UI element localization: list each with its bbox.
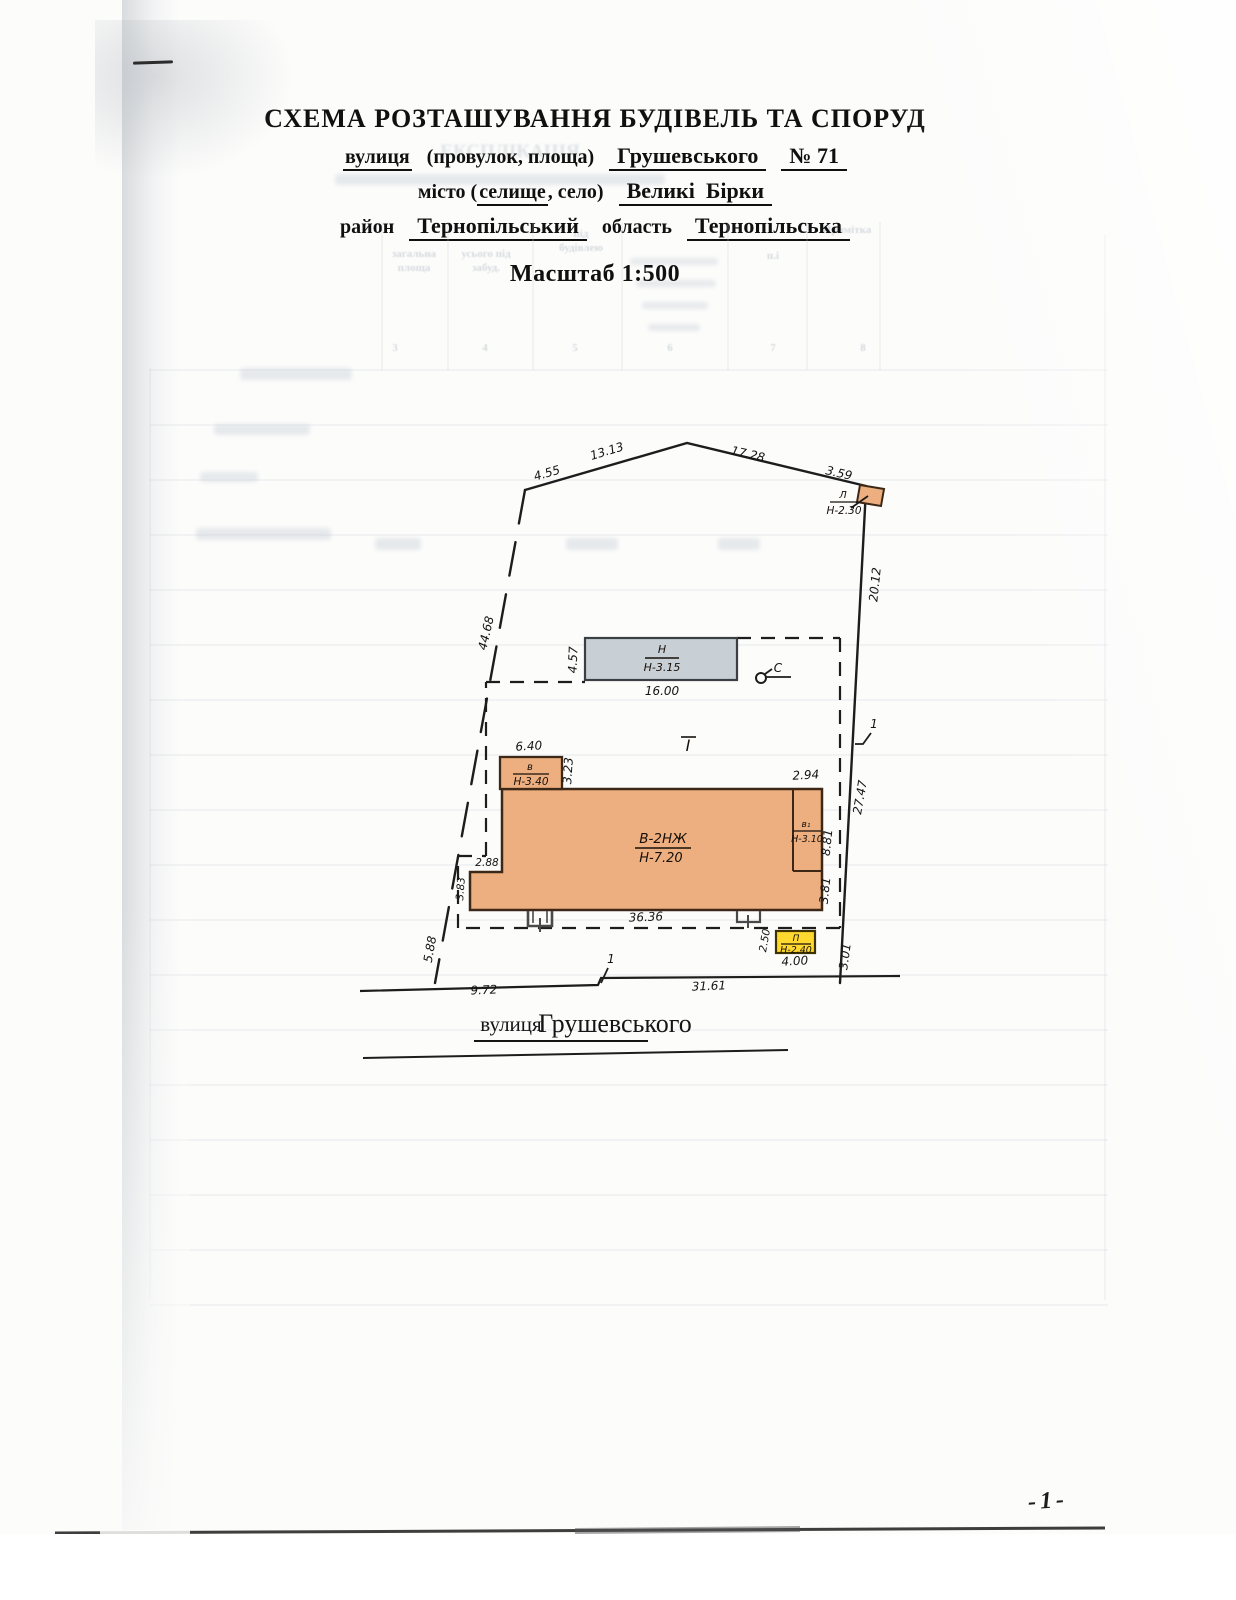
dim-top3: 17.28 [730, 443, 767, 464]
well-label: С [774, 661, 783, 675]
shed-n-height: Н-3.15 [644, 661, 681, 674]
boundary-point-street: 1 [607, 952, 615, 966]
annex-v-height: Н-3.40 [513, 776, 548, 788]
dim-gray-left: 4.57 [566, 646, 581, 674]
dim-annex-top: 6.40 [515, 738, 543, 753]
dim-p-left: 2.50 [757, 928, 773, 953]
shed-p-code: П [793, 934, 800, 944]
dim-left: 44.68 [475, 614, 496, 651]
building-main [470, 789, 822, 910]
main-building-code: В-2НЖ [639, 831, 687, 847]
dim-left-lower: 5.88 [421, 935, 439, 964]
main-building-height: Н-7.20 [639, 851, 682, 866]
street-label-group: вулиця Грушевського [474, 1009, 692, 1041]
scan-diagonal-highlight [816, 0, 1236, 1530]
dim-street-left: 9.72 [470, 983, 497, 998]
dim-p-bottom: 4.00 [781, 953, 809, 968]
plot-number: І [686, 736, 691, 755]
street-name: Грушевського [538, 1009, 691, 1038]
handwritten-page-number: -1- [1027, 1487, 1069, 1517]
scanner-background [0, 1534, 1236, 1600]
dim-step-h: 3.83 [454, 877, 468, 901]
scan-crease-fade [100, 900, 190, 1540]
dim-gray-bottom: 16.00 [645, 684, 680, 698]
dim-annex-right: 3.23 [560, 757, 576, 785]
dim-street-right: 31.61 [691, 978, 726, 993]
dim-main-bottom: 36.36 [628, 909, 663, 924]
dim-step-w: 2.88 [475, 857, 499, 869]
well-symbol: С [756, 661, 791, 683]
scan-corner-smudge [95, 20, 295, 180]
annex-v-code: в [527, 762, 533, 773]
boundary-top [525, 443, 866, 490]
shed-n-code: Н [658, 643, 666, 656]
street-far-line [363, 1050, 788, 1058]
dim-top2: 13.13 [588, 439, 625, 462]
annex-v1-code: в₁ [802, 820, 811, 830]
dimension-labels: 4.55 13.13 17.28 3.59 44.68 20.12 27.47 … [421, 439, 884, 997]
street-prefix: вулиця [480, 1012, 542, 1036]
scanned-document-page: { "page": { "page_number": "-1-" }, "hea… [0, 0, 1236, 1600]
